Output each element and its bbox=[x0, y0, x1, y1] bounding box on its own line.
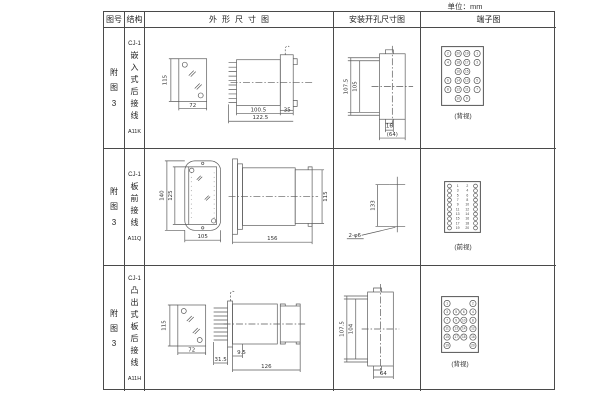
mount-cell-row2: 133 2-φ6 bbox=[334, 149, 421, 266]
svg-text:11: 11 bbox=[456, 207, 460, 211]
model-prefix-row2: CJ-1 bbox=[128, 172, 141, 178]
dim-width: 72 bbox=[189, 103, 196, 109]
dim-width: 72 bbox=[188, 347, 195, 353]
svg-text:19: 19 bbox=[465, 52, 469, 56]
svg-text:18: 18 bbox=[456, 61, 460, 65]
mount-cell-row3: 107.5 104 64 bbox=[334, 266, 421, 391]
hole-label: 2-φ6 bbox=[349, 233, 362, 239]
svg-text:10: 10 bbox=[465, 203, 469, 207]
dim-length: 156 bbox=[267, 236, 278, 242]
svg-text:5: 5 bbox=[457, 193, 459, 197]
terminal-cell-row2: 1234567891011121314151617181920 (前视) bbox=[421, 149, 556, 266]
dim-w-inner: 16 bbox=[386, 124, 393, 130]
dim-outer-h: 140 bbox=[159, 190, 165, 201]
mount-drawing-row3: 107.5 104 64 bbox=[334, 266, 420, 391]
side-view-row1: 100.5 35 122.5 bbox=[229, 46, 315, 123]
fig-no-row1: 附图3 bbox=[104, 28, 125, 149]
svg-text:18: 18 bbox=[465, 221, 469, 225]
outline-drawing-row3: 115 72 31.5 9.5 126 bbox=[145, 266, 333, 391]
side-view-row3: 31.5 9.5 126 bbox=[214, 291, 307, 372]
dim-inner-h: 105 bbox=[353, 81, 359, 91]
svg-text:14: 14 bbox=[456, 79, 460, 83]
col-header-mounting: 安装开孔尺寸图 bbox=[334, 12, 421, 28]
front-view-row2: 140 125 105 bbox=[159, 161, 220, 242]
model-prefix-row1: CJ-1 bbox=[128, 41, 141, 47]
side-view-row2: 156 115 bbox=[229, 159, 329, 244]
dim-width: 64 bbox=[380, 371, 387, 377]
front-view-row1: 115 72 bbox=[162, 59, 206, 111]
svg-text:17: 17 bbox=[456, 221, 460, 225]
structure-row3: CJ-1 凸出式板后接线 A11H bbox=[125, 266, 145, 391]
svg-text:17: 17 bbox=[454, 335, 458, 339]
svg-text:14: 14 bbox=[465, 212, 469, 216]
svg-text:9: 9 bbox=[457, 203, 459, 207]
structure-row1: CJ-1 嵌入式后接线 A11K bbox=[125, 28, 145, 149]
svg-text:7: 7 bbox=[476, 88, 478, 92]
svg-text:12: 12 bbox=[456, 88, 460, 92]
svg-text:19: 19 bbox=[456, 226, 460, 230]
svg-text:4: 4 bbox=[466, 189, 468, 193]
svg-text:1: 1 bbox=[446, 302, 448, 306]
svg-text:16: 16 bbox=[456, 70, 460, 74]
svg-text:11: 11 bbox=[465, 88, 469, 92]
svg-text:19: 19 bbox=[445, 344, 449, 348]
dim-inner-h: 125 bbox=[168, 190, 174, 200]
svg-text:12: 12 bbox=[465, 207, 469, 211]
structure-text-row2: 板前接线 bbox=[130, 181, 139, 229]
dim-height: 115 bbox=[161, 320, 167, 330]
svg-text:7: 7 bbox=[446, 318, 448, 322]
outline-cell-row2: 140 125 105 156 115 bbox=[145, 149, 334, 266]
structure-row2: CJ-1 板前接线 A11Q bbox=[125, 149, 145, 266]
mount-drawing-row1: 107.5 105 16 (64) bbox=[334, 28, 420, 148]
svg-text:6: 6 bbox=[463, 310, 465, 314]
svg-text:5: 5 bbox=[455, 310, 457, 314]
svg-text:20: 20 bbox=[465, 226, 469, 230]
svg-text:18: 18 bbox=[462, 335, 466, 339]
svg-text:2: 2 bbox=[447, 52, 449, 56]
mount-holes-row2: 133 2-φ6 bbox=[347, 177, 405, 239]
outline-cell-row3: 115 72 31.5 9.5 126 bbox=[145, 266, 334, 391]
dim-length: 126 bbox=[261, 364, 272, 370]
svg-text:15: 15 bbox=[445, 335, 449, 339]
manual-page: 单位：mm 图号 结构 外形尺寸图 安装开孔尺寸图 端子图 附图3 CJ-1 嵌… bbox=[0, 0, 600, 400]
svg-text:15: 15 bbox=[465, 70, 469, 74]
fig-no-row2: 附图3 bbox=[104, 149, 125, 266]
col-header-terminal: 端子图 bbox=[421, 12, 556, 28]
model-code-row2: A11Q bbox=[128, 236, 142, 242]
dim-outer-h: 107.5 bbox=[343, 79, 349, 95]
terminal-diagram-row1: 2201914181731615614135812117109 bbox=[441, 46, 484, 106]
svg-text:16: 16 bbox=[471, 335, 475, 339]
svg-text:10: 10 bbox=[462, 318, 466, 322]
dim-inner-h: 104 bbox=[348, 323, 354, 334]
svg-text:20: 20 bbox=[456, 52, 460, 56]
model-code-row1: A11K bbox=[128, 129, 141, 135]
col-header-outline: 外形尺寸图 bbox=[145, 12, 334, 28]
svg-text:8: 8 bbox=[447, 88, 449, 92]
svg-text:4: 4 bbox=[472, 310, 474, 314]
svg-text:13: 13 bbox=[465, 79, 469, 83]
svg-text:12: 12 bbox=[471, 327, 475, 331]
svg-text:4: 4 bbox=[447, 61, 449, 65]
structure-text-row3: 凸出式板后接线 bbox=[130, 285, 139, 369]
svg-text:17: 17 bbox=[465, 61, 469, 65]
spec-table: 图号 结构 外形尺寸图 安装开孔尺寸图 端子图 附图3 CJ-1 嵌入式后接线 … bbox=[103, 11, 555, 390]
structure-text-row1: 嵌入式后接线 bbox=[130, 50, 139, 122]
front-view-row3: 115 72 bbox=[161, 305, 205, 355]
terminal-caption-row1: (背视) bbox=[433, 110, 493, 120]
terminal-caption-row3: (背视) bbox=[430, 358, 490, 368]
dim-body-len: 100.5 bbox=[251, 107, 267, 113]
outline-drawing-row2: 140 125 105 156 115 bbox=[145, 149, 333, 265]
mount-drawing-row2: 133 2-φ6 bbox=[334, 149, 420, 265]
terminal-diagram-row3: 1235647910811131412151718161920 bbox=[441, 296, 479, 353]
col-header-structure: 结构 bbox=[125, 12, 145, 28]
svg-text:2: 2 bbox=[472, 302, 474, 306]
svg-text:13: 13 bbox=[456, 212, 460, 216]
terminal-cell-row1: 2201914181731615614135812117109 (背视) bbox=[421, 28, 556, 149]
svg-text:3: 3 bbox=[446, 310, 448, 314]
dim-pitch: 133 bbox=[371, 200, 377, 211]
svg-text:6: 6 bbox=[466, 193, 468, 197]
dim-step: 9.5 bbox=[237, 350, 246, 356]
terminal-diagram-row2: 1234567891011121314151617181920 bbox=[444, 181, 481, 233]
svg-text:3: 3 bbox=[457, 189, 459, 193]
model-code-row3: A11H bbox=[128, 376, 141, 382]
terminal-cell-row3: 1235647910811131412151718161920 (背视) bbox=[421, 266, 556, 391]
svg-text:8: 8 bbox=[466, 198, 468, 202]
fig-no-row3: 附图3 bbox=[104, 266, 125, 391]
svg-text:9: 9 bbox=[455, 318, 457, 322]
svg-text:3: 3 bbox=[476, 61, 478, 65]
dim-pin-len: 31.5 bbox=[215, 357, 227, 363]
svg-text:15: 15 bbox=[456, 217, 460, 221]
dim-outer-h: 107.5 bbox=[339, 321, 345, 337]
dim-total-len: 122.5 bbox=[253, 115, 269, 121]
svg-text:10: 10 bbox=[456, 97, 460, 101]
mount-profile-row1: 107.5 105 16 (64) bbox=[343, 46, 413, 140]
dim-w-outer: (64) bbox=[387, 132, 398, 138]
svg-text:6: 6 bbox=[447, 79, 449, 83]
model-prefix-row3: CJ-1 bbox=[128, 276, 141, 282]
dim-width: 105 bbox=[197, 234, 207, 240]
mount-cell-row1: 107.5 105 16 (64) bbox=[334, 28, 421, 149]
dim-height: 115 bbox=[162, 75, 168, 85]
svg-text:8: 8 bbox=[472, 318, 474, 322]
svg-text:13: 13 bbox=[454, 327, 458, 331]
svg-text:9: 9 bbox=[466, 97, 468, 101]
terminal-caption-row2: (前视) bbox=[433, 241, 493, 251]
outline-cell-row1: 115 72 100.5 35 122.5 bbox=[145, 28, 334, 149]
outline-drawing-row1: 115 72 100.5 35 122.5 bbox=[145, 28, 333, 148]
svg-text:5: 5 bbox=[476, 79, 478, 83]
svg-text:16: 16 bbox=[465, 217, 469, 221]
col-header-fig-no: 图号 bbox=[104, 12, 125, 28]
svg-text:1: 1 bbox=[476, 52, 478, 56]
dim-side-h: 115 bbox=[323, 191, 329, 201]
svg-text:1: 1 bbox=[457, 184, 459, 188]
svg-text:11: 11 bbox=[445, 327, 449, 331]
dim-flange: 35 bbox=[284, 107, 291, 113]
svg-text:2: 2 bbox=[466, 184, 468, 188]
svg-text:20: 20 bbox=[471, 344, 475, 348]
mount-profile-row3: 107.5 104 64 bbox=[339, 284, 399, 379]
svg-text:7: 7 bbox=[457, 198, 459, 202]
svg-text:14: 14 bbox=[462, 327, 466, 331]
